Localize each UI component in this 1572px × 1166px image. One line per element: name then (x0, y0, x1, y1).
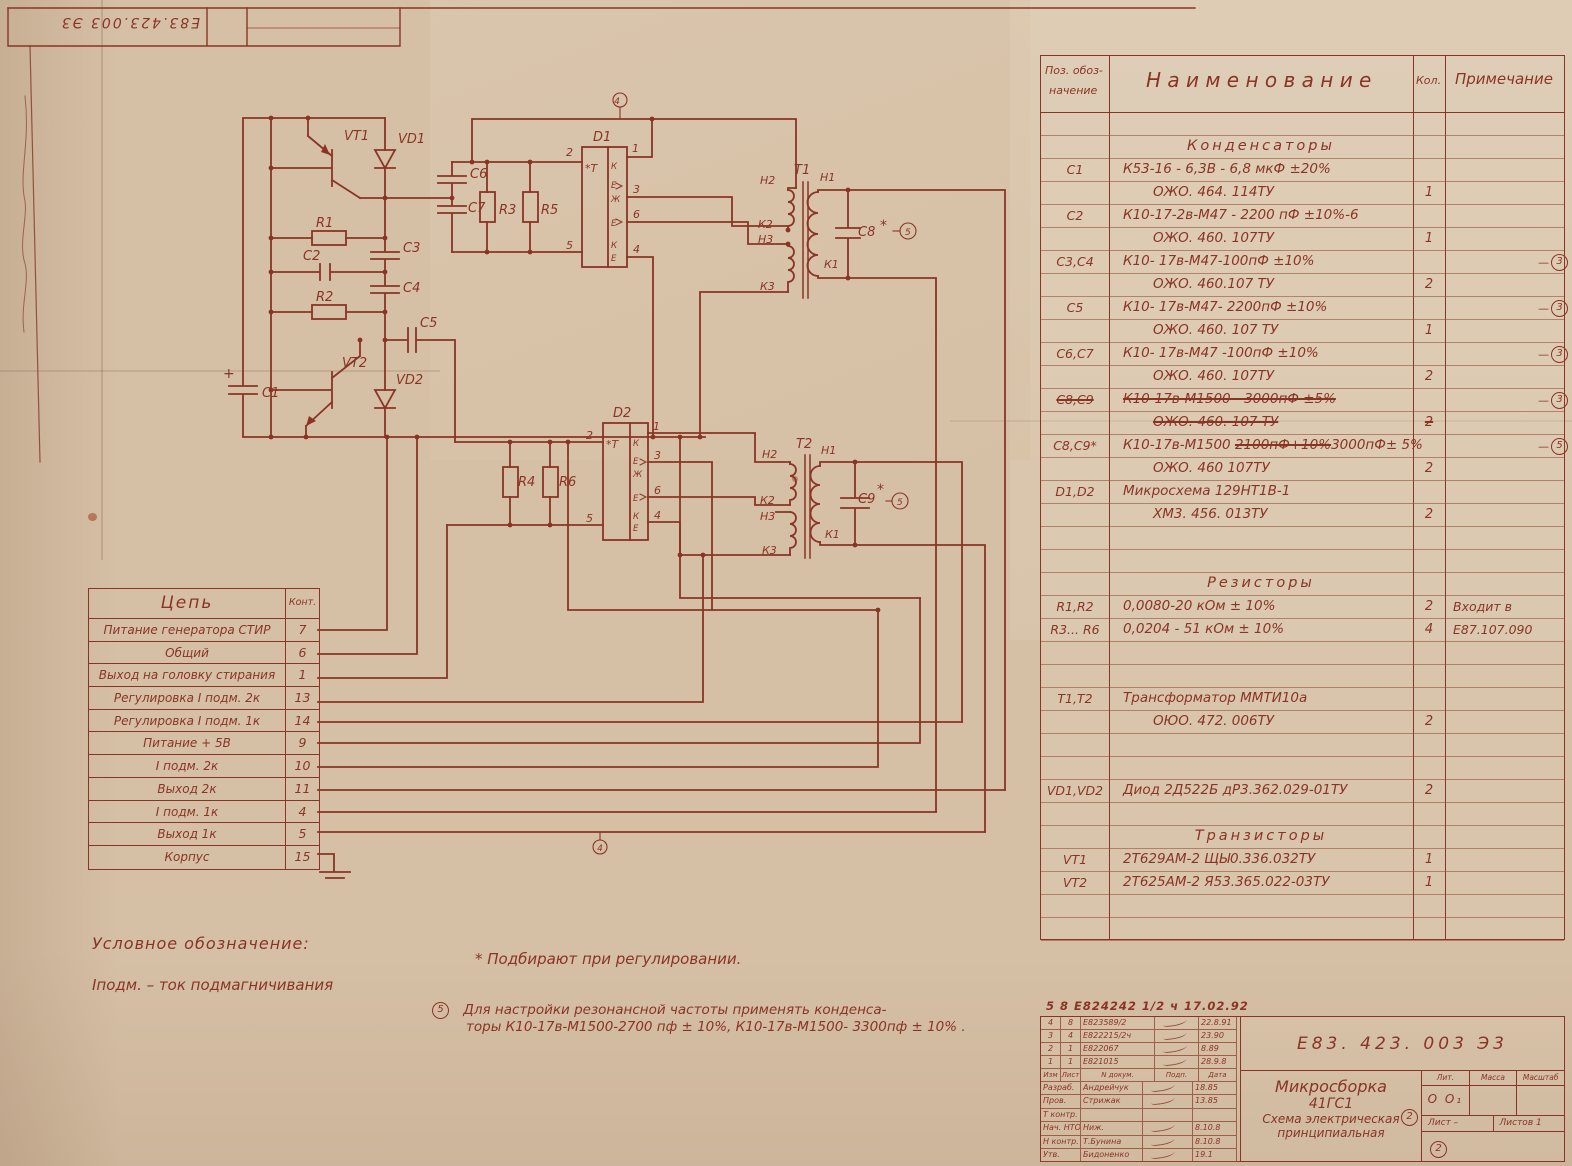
svg-text:Е: Е (611, 254, 617, 264)
revision-table: 48Е823589/222.8.9134Е822215/2ч23.9021Е82… (1041, 1017, 1240, 1082)
svg-text:Н1: Н1 (820, 171, 835, 184)
revision-handnote: 5 8 Е824242 1/2 ч 17.02.92 (1046, 999, 1249, 1013)
sheet-label: Лист – (1422, 1116, 1494, 1131)
svg-text:1: 1 (653, 420, 660, 433)
label-d2-t: *Т (606, 438, 620, 451)
note-5: 5 Для настройки резонансной частоты прим… (432, 1002, 966, 1035)
pin-table: Цепь Конт. Питание генератора СТИР7Общий… (88, 588, 320, 870)
circled-mark-2b: 2 (1430, 1141, 1447, 1158)
svg-text:*: * (877, 482, 884, 498)
parts-row (1041, 665, 1564, 688)
label-t2: Т2 (796, 437, 812, 452)
pin-row: Выход 1к5 (89, 823, 319, 846)
svg-text:Н3: Н3 (758, 233, 773, 246)
label-vt1: VT1 (344, 129, 369, 144)
paper: { "corner_stamp": {"doc_number": "Е83.42… (0, 0, 1572, 1166)
signature-scribble (1155, 1056, 1199, 1069)
label-r6: R6 (559, 475, 576, 490)
pin-row: Выход 2к11 (89, 778, 319, 801)
parts-row (1041, 757, 1564, 780)
signature-scribble (1143, 1082, 1193, 1095)
parts-row: ОЖО. 460. 107ТУ2 (1041, 366, 1564, 389)
svg-text:3: 3 (654, 449, 661, 462)
pin-table-body: Питание генератора СТИР7Общий6Выход на г… (89, 619, 319, 869)
header-note: Примечание (1455, 70, 1553, 88)
svg-text:Н1: Н1 (821, 444, 836, 457)
lit-value: О О₁ (1422, 1086, 1470, 1115)
svg-text:6: 6 (654, 484, 661, 497)
label-c8: С8 (858, 225, 875, 240)
pin-row: Выход на головку стирания1 (89, 664, 319, 687)
parts-row: ОЮО. 472. 006ТУ2 (1041, 711, 1564, 734)
scale-value (1517, 1086, 1564, 1115)
note-5-mark: 5 (432, 1002, 449, 1019)
parts-row: С3,С4К10- 17в-М47-100пФ ±10%—3 (1041, 251, 1564, 274)
parts-row (1041, 527, 1564, 550)
svg-text:Е: Е (633, 494, 639, 504)
svg-text:Е: Е (633, 457, 639, 467)
pin-row: Общий6 (89, 642, 319, 665)
parts-row: Конденсаторы (1041, 136, 1564, 159)
scale-label: Масштаб (1517, 1071, 1564, 1085)
parts-row: С6,С7К10- 17в-М47 -100пФ ±10%—3 (1041, 343, 1564, 366)
svg-text:4: 4 (633, 243, 640, 256)
svg-text:К3: К3 (762, 544, 777, 557)
svg-text:К2: К2 (758, 218, 773, 231)
signature-scribble (1155, 1017, 1199, 1030)
svg-text:5: 5 (586, 512, 593, 525)
parts-row (1041, 803, 1564, 826)
svg-text:Н3: Н3 (760, 510, 775, 523)
parts-row: ОЖО. 460. 107ТУ1 (1041, 228, 1564, 251)
document-number: Е83. 423. 003 Э3 (1241, 1017, 1564, 1071)
svg-text:К1: К1 (824, 258, 839, 271)
label-t1: Т1 (794, 163, 810, 178)
parts-row: Транзисторы (1041, 826, 1564, 849)
rev-mark-top: 4 (614, 97, 620, 107)
svg-text:1: 1 (632, 142, 639, 155)
margin-handwriting (23, 96, 27, 332)
label-c7: С7 (468, 201, 486, 216)
parts-row (1041, 895, 1564, 918)
svg-text:Ж: Ж (610, 195, 621, 205)
label-d1: D1 (593, 130, 611, 145)
parts-row: D1,D2Микросхема 129НТ1В-1 (1041, 481, 1564, 504)
parts-row (1041, 113, 1564, 136)
svg-text:К: К (633, 439, 640, 449)
parts-table-body: КонденсаторыС1К53-16 - 6,3В - 6,8 мкФ ±2… (1041, 113, 1564, 939)
pin-row: Корпус15 (89, 846, 319, 869)
parts-row (1041, 918, 1564, 941)
parts-row: VT12Т629АМ-2 ЩЫ0.336.032ТУ1 (1041, 849, 1564, 872)
svg-text:К: К (611, 241, 618, 251)
parts-row: Резисторы (1041, 573, 1564, 596)
svg-text:*: * (880, 218, 887, 234)
signature-scribble (1143, 1122, 1193, 1135)
header-pos-1: Поз. обоз- (1045, 64, 1103, 77)
svg-text:3: 3 (633, 183, 640, 196)
svg-text:Ж: Ж (632, 470, 643, 480)
pin-row: I подм. 2к10 (89, 755, 319, 778)
label-d2: D2 (613, 406, 631, 421)
legend-line: Iподм. – ток подмагничивания (92, 976, 333, 994)
pin-row: Регулировка I подм. 1к14 (89, 710, 319, 733)
parts-row: ОЖО. 460.107 ТУ2 (1041, 274, 1564, 297)
title-block-left: 48Е823589/222.8.9134Е822215/2ч23.9021Е82… (1041, 1017, 1241, 1161)
svg-text:5: 5 (905, 228, 911, 238)
svg-text:К1: К1 (825, 528, 840, 541)
parts-row: С8,С9К10-17в-М1500 - 3000пФ ±5%—3 (1041, 389, 1564, 412)
parts-row: ХМ3. 456. 013ТУ2 (1041, 504, 1564, 527)
label-d1-t: *Т (585, 162, 599, 175)
signature-scribble (1143, 1095, 1193, 1108)
parts-table-header: Поз. обоз- начение Н а и м е н о в а н и… (1041, 56, 1564, 113)
parts-row: ОЖО. 460. 107 ТУ2 (1041, 412, 1564, 435)
lit-label: Лит. (1422, 1071, 1470, 1085)
svg-text:Е: Е (611, 219, 617, 229)
label-vd2: VD2 (396, 373, 423, 388)
label-vt2: VT2 (342, 356, 367, 371)
svg-text:2: 2 (586, 429, 593, 442)
label-c9: С9 (858, 492, 875, 507)
parts-row: С2К10-17-2в-М47 - 2200 пФ ±10%-6 (1041, 205, 1564, 228)
svg-text:К: К (633, 512, 640, 522)
sheets-label: Листов 1 (1494, 1116, 1565, 1131)
svg-text:4: 4 (654, 509, 661, 522)
mass-value (1470, 1086, 1518, 1115)
title-block-right: Е83. 423. 003 Э3 Микросборка 41ГС1 Схема… (1241, 1017, 1564, 1161)
pin-table-header: Цепь Конт. (89, 589, 319, 619)
label-vd1: VD1 (398, 132, 425, 147)
parts-row: ОЖО. 460. 107 ТУ1 (1041, 320, 1564, 343)
circled-mark-2a: 2 (1401, 1109, 1418, 1126)
parts-row (1041, 550, 1564, 573)
parts-row: Т1,Т2Трансформатор ММТИ10а (1041, 688, 1564, 711)
parts-row: ОЖО. 464. 114ТУ1 (1041, 182, 1564, 205)
drawing-title: Микросборка 41ГС1 Схема электрическая пр… (1241, 1071, 1421, 1161)
pin-header-contact: Конт. (285, 589, 319, 618)
parts-row: R1,R20,0080-20 кОм ± 10%2Входит в (1041, 596, 1564, 619)
label-r5: R5 (541, 203, 558, 218)
svg-text:К3: К3 (760, 280, 775, 293)
pin-row: Питание генератора СТИР7 (89, 619, 319, 642)
svg-text:Е: Е (611, 181, 617, 191)
header-pos-2: начение (1049, 84, 1097, 97)
signature-scribble (1155, 1030, 1199, 1043)
svg-text:6: 6 (633, 208, 640, 221)
label-c6: С6 (470, 167, 487, 182)
signature-scribble (1143, 1136, 1193, 1149)
svg-text:5: 5 (897, 498, 903, 508)
parts-row: VD1,VD2Диод 2Д522Б дР3.362.029-01ТУ2 (1041, 780, 1564, 803)
label-r2: R2 (316, 290, 333, 305)
title-block: 48Е823589/222.8.9134Е822215/2ч23.9021Е82… (1040, 1016, 1565, 1162)
parts-row: С8,С9*К10-17в-М1500 2100пФ+10%3000пФ± 5%… (1041, 435, 1564, 458)
svg-text:Н2: Н2 (760, 174, 775, 187)
pin-header-circuit: Цепь (89, 589, 285, 618)
svg-text:Е: Е (633, 524, 639, 534)
label-c2: С2 (303, 249, 320, 264)
legend-title: Условное обозначение: (92, 934, 310, 953)
parts-row: R3... R60,0204 - 51 кОм ± 10%4Е87.107.09… (1041, 619, 1564, 642)
label-c1: С1 (262, 386, 279, 401)
rev-mark-bottom: 4 (597, 844, 603, 854)
star-note: * Подбирают при регулировании. (475, 950, 741, 968)
parts-row (1041, 734, 1564, 757)
label-plus: + (223, 366, 235, 382)
svg-text:Н2: Н2 (762, 448, 777, 461)
svg-text:К: К (611, 162, 618, 172)
label-c4: С4 (403, 281, 420, 296)
signature-table: Разраб.Андрейчук18.85Пров.Стрижак13.85Т … (1041, 1082, 1240, 1162)
svg-text:2: 2 (566, 146, 573, 159)
parts-row (1041, 642, 1564, 665)
parts-table: Поз. обоз- начение Н а и м е н о в а н и… (1040, 55, 1565, 940)
parts-row: ОЖО. 460 107ТУ2 (1041, 458, 1564, 481)
parts-row: С5К10- 17в-М47- 2200пФ ±10%—3 (1041, 297, 1564, 320)
label-r3: R3 (499, 203, 516, 218)
parts-row: VT22Т625АМ-2 Я53.365.022-03ТУ1 (1041, 872, 1564, 895)
label-c5: С5 (420, 316, 437, 331)
header-name: Н а и м е н о в а н и е (1146, 68, 1371, 92)
svg-text:5: 5 (566, 239, 573, 252)
signature-scribble (1155, 1043, 1199, 1056)
svg-text:К2: К2 (760, 494, 775, 507)
signature-scribble (1143, 1149, 1193, 1162)
label-c3: С3 (403, 241, 420, 256)
header-qty: Кол. (1416, 74, 1441, 87)
lit-m-s-box: Лит. Масса Масштаб О О₁ Лист – Листов 1 … (1421, 1071, 1564, 1161)
label-r4: R4 (518, 475, 535, 490)
pin-row: Питание + 5В9 (89, 732, 319, 755)
pin-row: I подм. 1к4 (89, 801, 319, 824)
mass-label: Масса (1470, 1071, 1518, 1085)
parts-row: С1К53-16 - 6,3В - 6,8 мкФ ±20% (1041, 159, 1564, 182)
label-r1: R1 (316, 216, 333, 231)
pin-row: Регулировка I подм. 2к13 (89, 687, 319, 710)
